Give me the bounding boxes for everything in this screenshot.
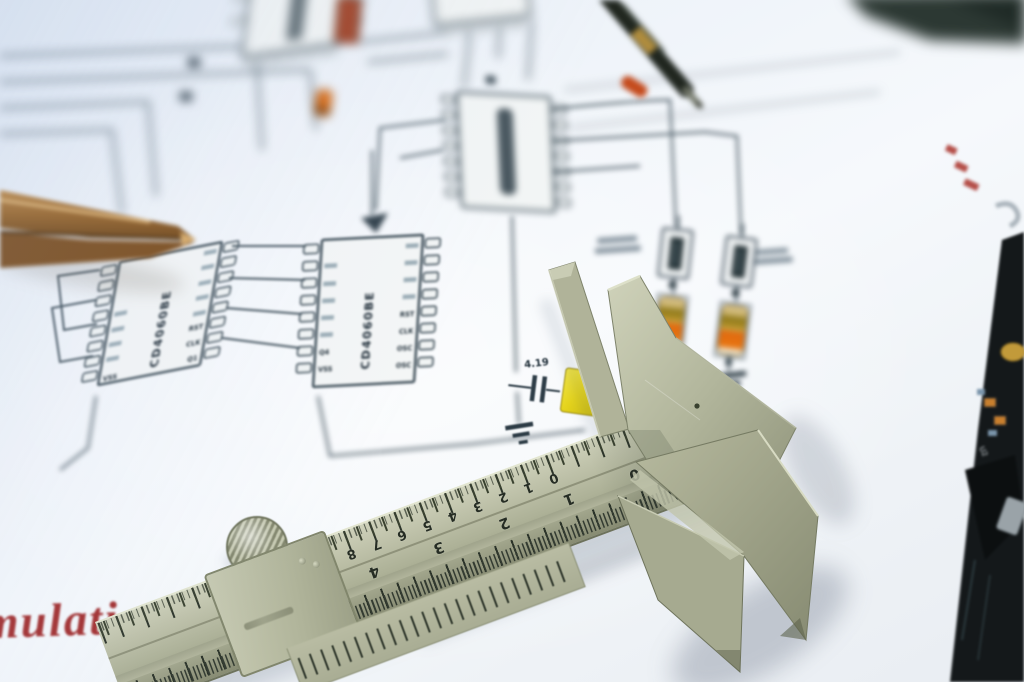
- inter-chip-wires: [52, 246, 306, 362]
- pin-mark: [180, 92, 192, 101]
- tweezers-blade-top: [0, 190, 196, 240]
- button-symbol: [658, 228, 693, 279]
- pcb-ref-designator: U2: [977, 445, 990, 458]
- pin-label-q4: Q4: [319, 348, 330, 357]
- crystal-frequency-label: 4.19: [524, 357, 550, 371]
- red-annotation-marks: [945, 144, 1018, 226]
- resistor-orange: [655, 296, 686, 348]
- pen-body: [602, 0, 686, 90]
- pin-label-rst: RST: [400, 310, 415, 319]
- resistor-orange: [717, 304, 749, 357]
- pcb-corner-top-right: [846, 0, 1024, 44]
- main-ics: CD4060BE VSS: [52, 234, 441, 388]
- pin-label-vss: VSS: [318, 365, 333, 374]
- pcb-metal-tab: [996, 496, 1024, 535]
- tweezers-shadow: [0, 243, 186, 301]
- slider-brand-emboss: [243, 606, 294, 631]
- slider-screw: [298, 557, 307, 566]
- sip-component-red: [334, 0, 362, 44]
- tweezers-blade-bottom: [0, 232, 196, 268]
- smd-resistor: [988, 430, 997, 436]
- connection-wires: [60, 100, 741, 470]
- loose-resistor-red: [619, 74, 650, 100]
- illegible-pin-labels: [320, 243, 419, 337]
- pen-tip: [686, 90, 699, 105]
- ground-symbol: [644, 362, 687, 389]
- pin-label-rst: RST: [188, 322, 204, 333]
- slider-screw: [312, 560, 321, 569]
- photo-circuit-schematic-with-caliper: 4.19 CD4060BE: [0, 0, 1024, 682]
- pin-label-clk: CLK: [185, 338, 201, 349]
- caliper-outer-jaw-movable: [618, 496, 744, 672]
- branch-reset: [642, 214, 704, 394]
- ic-cd4060-right: CD4060BE Q4: [295, 234, 440, 388]
- pcb-power-component: [965, 455, 1024, 560]
- smd-capacitor: [994, 416, 1006, 425]
- pcb-gold-pad: [1001, 343, 1024, 361]
- ground-symbol: [505, 422, 536, 447]
- button-symbol-core: [668, 237, 684, 270]
- illegible-pin-labels: [106, 249, 217, 362]
- pen-gold-band: [636, 30, 654, 50]
- pcb-board: [950, 232, 1024, 682]
- ic-cd4060-left: CD4060BE VSS: [81, 239, 240, 389]
- schematic-top-region: [0, 0, 900, 214]
- smd-capacitor: [984, 398, 996, 407]
- ic-left-pin-stubs: [82, 241, 239, 383]
- button-symbol: [721, 236, 757, 287]
- button-branches: [594, 214, 793, 403]
- ground-symbol: [706, 371, 748, 398]
- partial-ic-top-left: [226, 0, 369, 69]
- pen-clip: [622, 4, 664, 52]
- smd-resistor: [977, 389, 985, 395]
- pin-label-osc-a: OSC: [397, 344, 413, 353]
- partial-ic-top-center: [428, 0, 532, 36]
- pin-label-q1: Q1: [187, 354, 199, 364]
- pin-mark: [188, 58, 200, 67]
- center-ic-group: [441, 73, 571, 213]
- button-label-blurred: [594, 235, 641, 254]
- pin-label-osc-b: OSC: [396, 361, 412, 370]
- ic-center: [441, 73, 571, 213]
- crystal-component-yellow: [560, 368, 602, 417]
- caliper-inner-jaw-movable: [549, 262, 629, 437]
- caliper-beam: 0 1 2 3 4 5 6 7 8 0 1 2 3 4: [95, 398, 728, 682]
- resistor-top-left: [314, 89, 332, 117]
- button-label-blurred: [750, 247, 793, 265]
- crystal-group: 4.19: [505, 357, 602, 446]
- ic-left-label: CD4060BE: [147, 289, 174, 369]
- pin-label-vss: VSS: [102, 373, 118, 384]
- gray-glyph-smudge: [996, 204, 1018, 226]
- button-symbol-core: [731, 245, 748, 278]
- ic-right-pin-stubs: [296, 238, 440, 373]
- branch-cycle: [703, 222, 768, 403]
- ic-right-label: CD4060BE: [358, 291, 377, 370]
- antenna-triangle-symbol: [361, 213, 388, 233]
- pin-label-clk: CLK: [399, 327, 415, 336]
- bus-wires: [0, 20, 900, 214]
